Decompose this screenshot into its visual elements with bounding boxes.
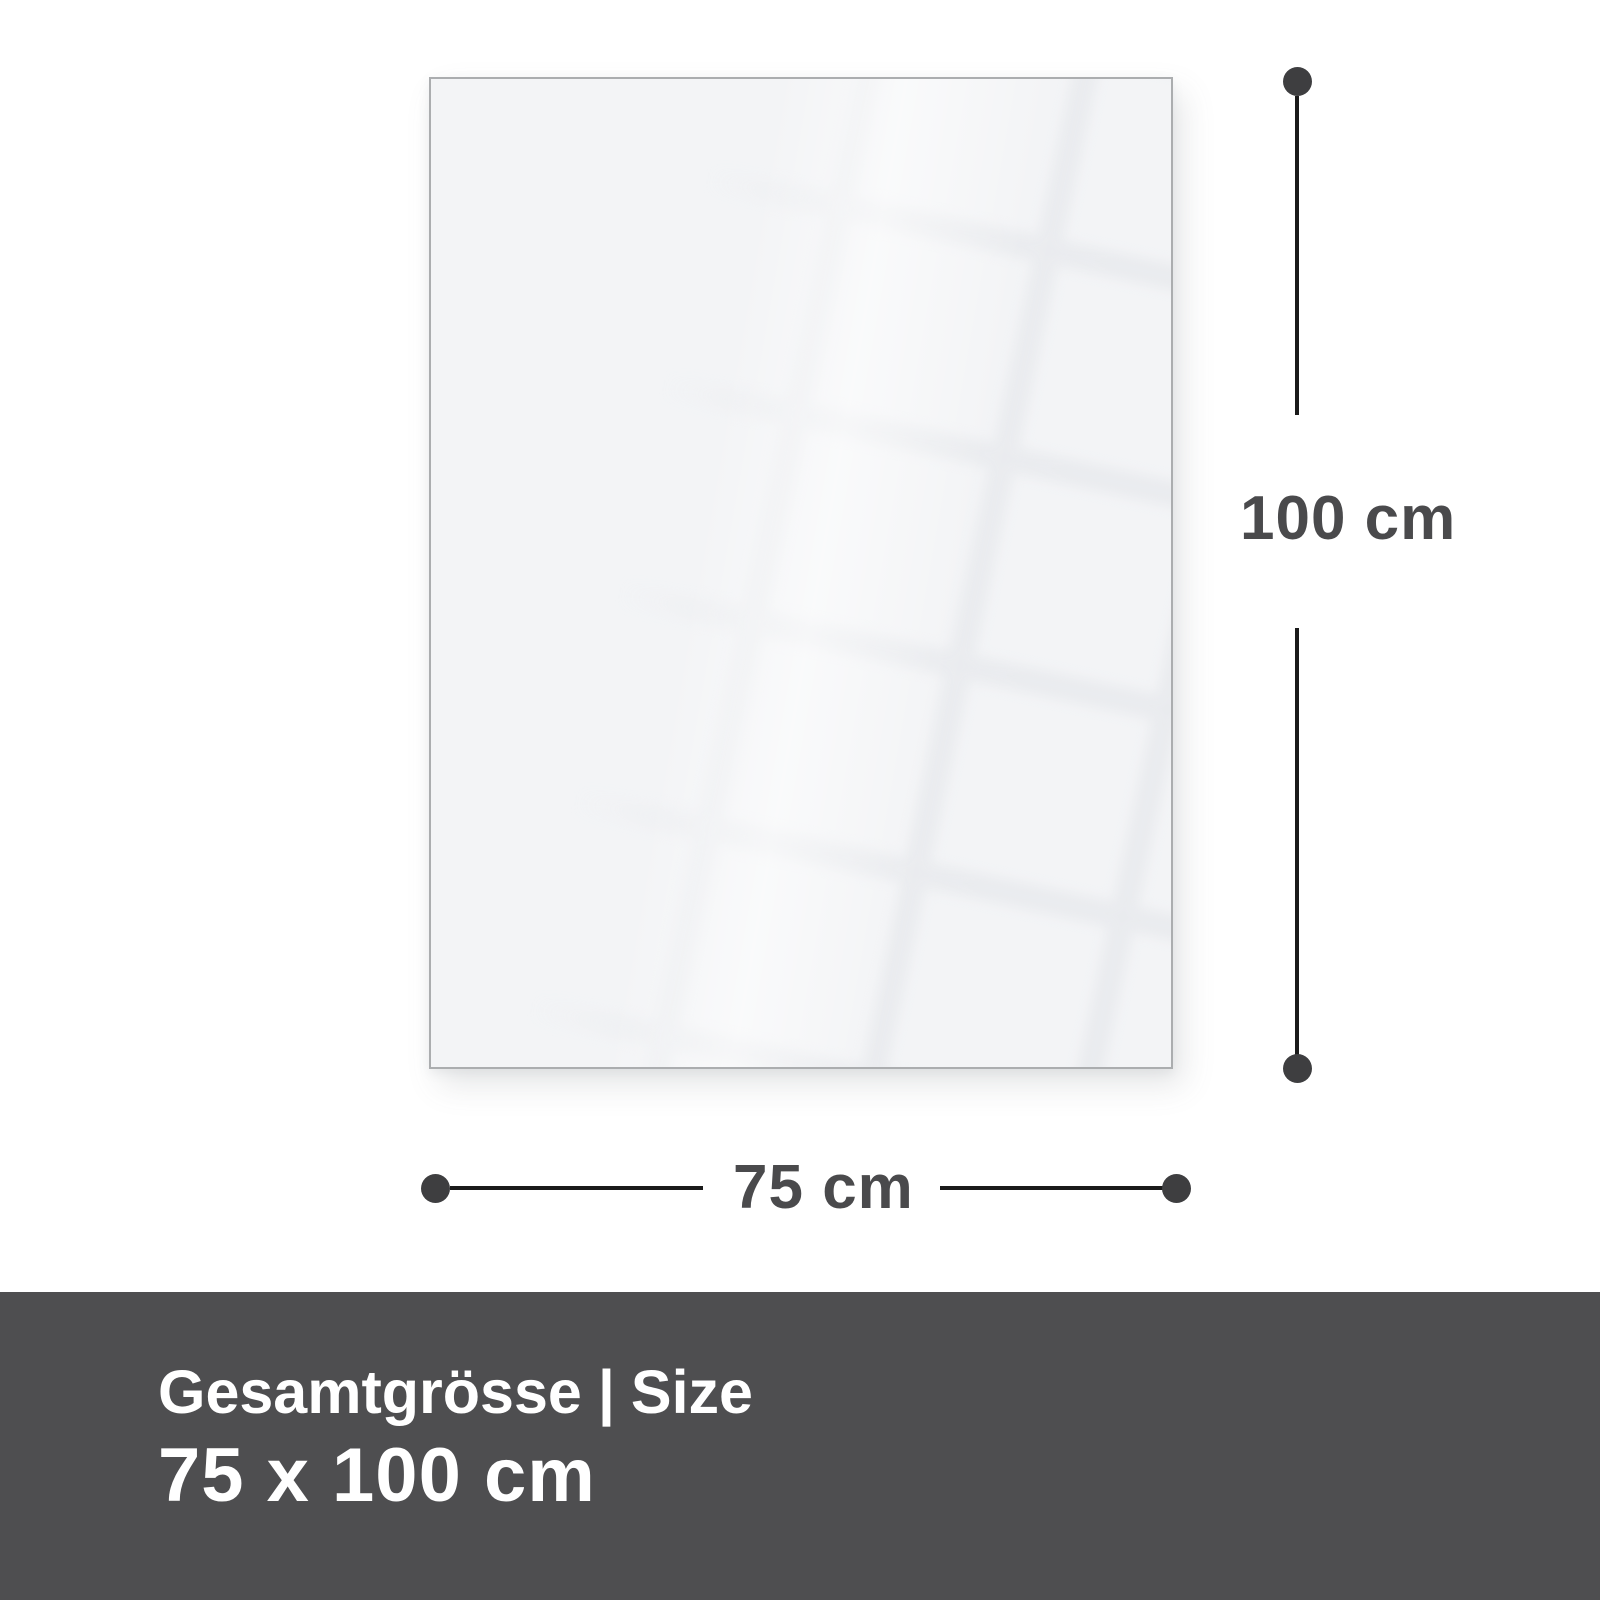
dimension-endpoint-dot-right — [1162, 1174, 1191, 1203]
height-line-lower-segment — [1295, 628, 1299, 1055]
width-dimension-label: 75 cm — [733, 1157, 914, 1219]
footer-title: Gesamtgrösse | Size — [158, 1354, 1600, 1430]
size-diagram: 100 cm 75 cm Gesamtgrösse | Size 75 x 10… — [0, 0, 1600, 1600]
height-line-upper-segment — [1295, 96, 1299, 415]
footer-size-value: 75 x 100 cm — [158, 1432, 1600, 1519]
size-footer: Gesamtgrösse | Size 75 x 100 cm — [0, 1292, 1600, 1600]
footer-title-english: Size — [631, 1354, 753, 1430]
dimension-endpoint-dot-left — [421, 1174, 450, 1203]
product-panel — [429, 77, 1173, 1069]
footer-title-german: Gesamtgrösse — [158, 1354, 582, 1430]
width-line-left-segment — [450, 1186, 703, 1190]
width-line-right-segment — [940, 1186, 1163, 1190]
dimension-endpoint-dot-top — [1283, 67, 1312, 96]
footer-title-separator: | — [598, 1354, 615, 1430]
dimension-endpoint-dot-bottom — [1283, 1054, 1312, 1083]
glass-sheen-overlay — [431, 79, 1171, 1067]
height-dimension-label: 100 cm — [1240, 488, 1456, 550]
